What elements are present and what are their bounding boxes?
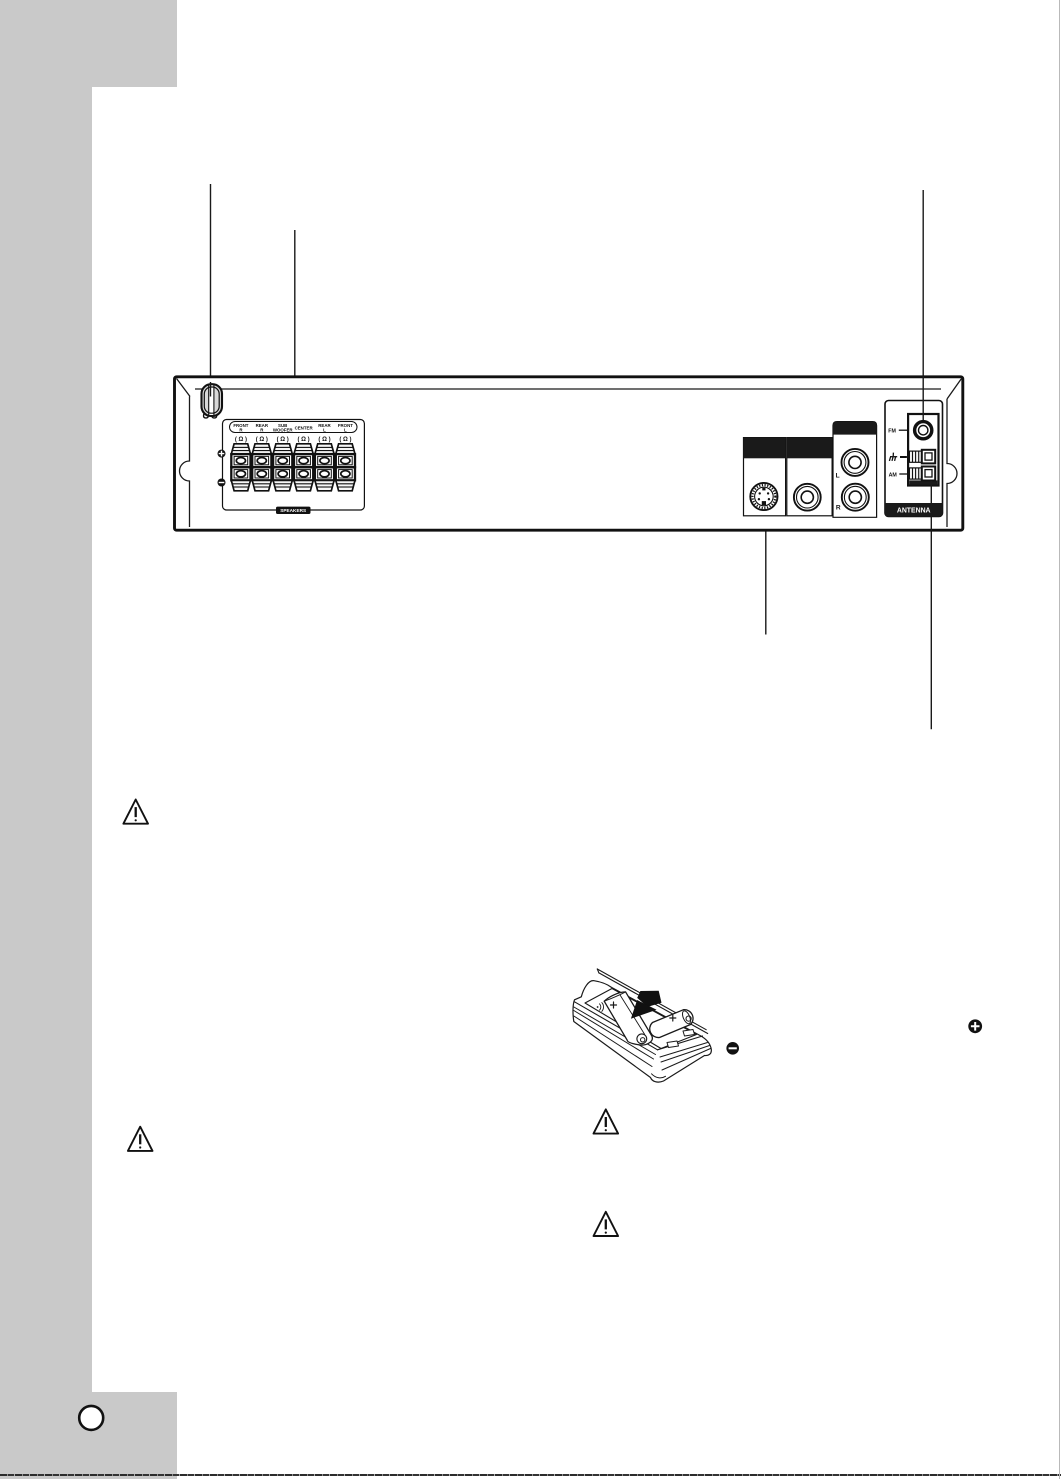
svg-text:L: L [836, 472, 840, 479]
svg-text:L: L [344, 428, 347, 433]
svg-text:WOOFER: WOOFER [273, 428, 294, 433]
svg-text:( Ω ): ( Ω ) [298, 437, 310, 443]
svg-text:ANTENNA: ANTENNA [897, 508, 931, 515]
svg-text:L: L [323, 428, 326, 433]
svg-text:( Ω ): ( Ω ) [256, 437, 268, 443]
svg-text:AM: AM [889, 472, 898, 478]
svg-text:R: R [836, 505, 841, 512]
svg-text:( Ω ): ( Ω ) [318, 437, 330, 443]
svg-text:CENTER: CENTER [295, 425, 314, 430]
svg-text:SPEAKERS: SPEAKERS [280, 508, 306, 513]
svg-text:( Ω ): ( Ω ) [277, 437, 289, 443]
svg-text:( Ω ): ( Ω ) [339, 437, 351, 443]
svg-text:FM: FM [888, 428, 896, 434]
svg-text:( Ω ): ( Ω ) [235, 437, 247, 443]
